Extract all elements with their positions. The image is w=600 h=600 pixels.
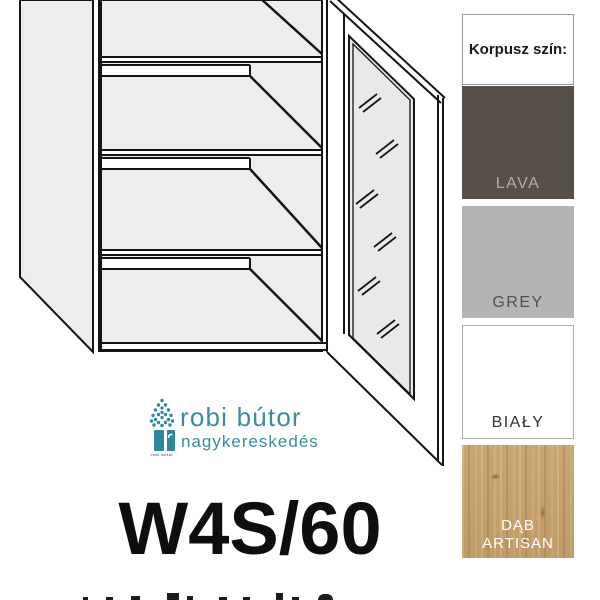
- carcass-color-panel: Korpusz szín: LAVA GREY BIAŁY DĄB ARTISA…: [462, 14, 574, 558]
- glass-door: [327, 0, 445, 466]
- swatch-label-grey: GREY: [462, 293, 574, 312]
- color-panel-header: Korpusz szín:: [462, 14, 574, 85]
- swatch-bialy: BIAŁY: [462, 325, 574, 439]
- logo-tree-books-icon: [146, 398, 178, 456]
- logo-title: robi bútor: [180, 402, 302, 433]
- swatch-grey: GREY: [462, 206, 574, 318]
- cabinet-interior: [101, 0, 322, 351]
- swatch-label-bialy: BIAŁY: [463, 413, 573, 432]
- logo: robi bútor robi bútor nagykereskedés: [146, 396, 336, 466]
- cropped-caption-remnant: [0, 591, 460, 600]
- logo-subtitle: nagykereskedés: [181, 432, 319, 452]
- swatch-label-dab-artisan: DĄB ARTISAN: [478, 517, 558, 553]
- product-sheet: robi bútor robi bútor nagykereskedés W4S…: [0, 0, 600, 600]
- product-code: W4S/60: [0, 486, 500, 571]
- logo-icon-caption: robi bútor: [144, 452, 180, 457]
- swatch-dab-artisan: DĄB ARTISAN: [462, 445, 574, 558]
- swatch-lava: LAVA: [462, 86, 574, 199]
- cabinet-side-panel: [20, 0, 93, 352]
- swatch-label-lava: LAVA: [462, 174, 574, 193]
